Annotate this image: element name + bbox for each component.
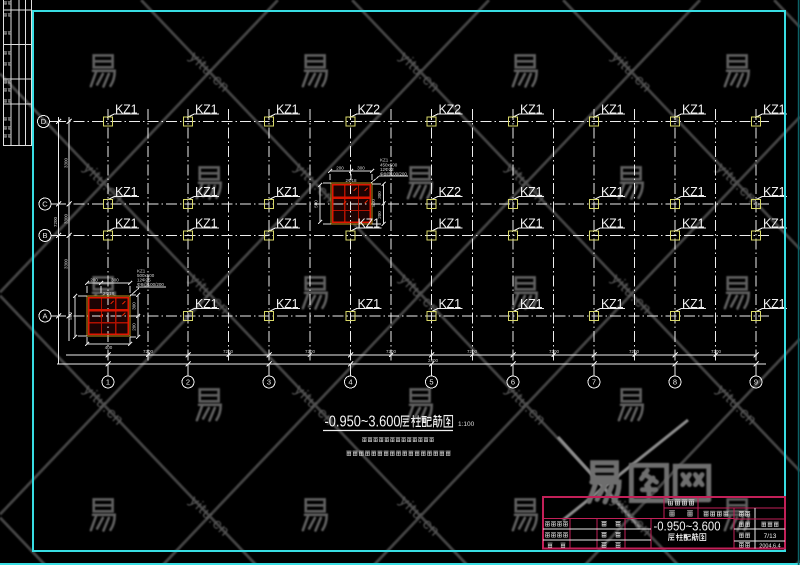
svg-text:300: 300: [132, 302, 137, 310]
svg-text:200: 200: [336, 166, 344, 171]
svg-text:KZ1: KZ1: [763, 297, 786, 311]
svg-text:D: D: [41, 117, 47, 126]
svg-text:3300: 3300: [64, 258, 69, 269]
svg-text:KZ1: KZ1: [601, 297, 624, 311]
svg-text:KZ1: KZ1: [520, 103, 543, 117]
svg-text:C: C: [42, 200, 48, 209]
svg-text:8: 8: [673, 378, 677, 387]
svg-text:3300: 3300: [64, 157, 69, 168]
svg-text:KZ1: KZ1: [195, 185, 218, 199]
svg-text:KZ1: KZ1: [276, 297, 299, 311]
svg-text:2400: 2400: [428, 358, 439, 363]
svg-text:3300: 3300: [64, 213, 69, 224]
svg-text:7/13: 7/13: [764, 533, 777, 540]
svg-text:2Φ18: 2Φ18: [345, 178, 357, 183]
svg-text:7200: 7200: [386, 349, 397, 354]
svg-text:KZ1: KZ1: [682, 185, 705, 199]
svg-text:300: 300: [111, 278, 119, 283]
svg-text:KZ1: KZ1: [682, 217, 705, 231]
svg-text:KZ1: KZ1: [358, 217, 381, 231]
svg-text:300: 300: [357, 166, 365, 171]
svg-text:7200: 7200: [629, 349, 640, 354]
svg-text:3: 3: [267, 378, 271, 387]
svg-text:KZ1: KZ1: [601, 217, 624, 231]
svg-text:500: 500: [68, 312, 73, 320]
svg-text:KZ1: KZ1: [763, 185, 786, 199]
svg-text:200: 200: [132, 323, 137, 331]
svg-text:300: 300: [377, 191, 382, 199]
svg-text:KZ1: KZ1: [520, 185, 543, 199]
svg-text:2: 2: [186, 378, 190, 387]
svg-text:Φ8@100/200: Φ8@100/200: [137, 282, 164, 287]
svg-text:KZ1: KZ1: [276, 185, 299, 199]
svg-text:9: 9: [754, 378, 758, 387]
svg-text:KZ1: KZ1: [276, 103, 299, 117]
svg-text:7200: 7200: [711, 349, 722, 354]
svg-text:KZ1: KZ1: [195, 217, 218, 231]
svg-text:KZ1: KZ1: [115, 185, 138, 199]
svg-text:KZ1: KZ1: [276, 217, 299, 231]
svg-text:KZ1: KZ1: [682, 297, 705, 311]
svg-text:KZ1: KZ1: [520, 297, 543, 311]
svg-text:2Φ18: 2Φ18: [103, 291, 115, 296]
svg-text:KZ1: KZ1: [763, 217, 786, 231]
svg-text:KZ1: KZ1: [763, 103, 786, 117]
svg-text:B: B: [42, 231, 47, 240]
svg-text:7200: 7200: [305, 349, 316, 354]
svg-text:7200: 7200: [223, 349, 234, 354]
svg-text:KZ2: KZ2: [439, 185, 462, 199]
svg-text:7: 7: [592, 378, 596, 387]
svg-text:KZ1: KZ1: [195, 103, 218, 117]
svg-text:1: 1: [106, 378, 110, 387]
svg-text:200: 200: [90, 278, 98, 283]
svg-text:4: 4: [348, 378, 352, 387]
svg-text:500: 500: [371, 199, 376, 207]
svg-text:KZ1: KZ1: [439, 297, 462, 311]
svg-text:KZ1: KZ1: [358, 297, 381, 311]
svg-text:7200: 7200: [53, 216, 58, 227]
svg-text:-0.950~3.600: -0.950~3.600: [654, 520, 721, 534]
svg-text:500: 500: [314, 200, 319, 208]
svg-text:5: 5: [429, 378, 433, 387]
svg-text:KZ1: KZ1: [195, 297, 218, 311]
svg-text:7200: 7200: [143, 349, 154, 354]
svg-text:7200: 7200: [549, 349, 560, 354]
svg-text:KZ1: KZ1: [682, 103, 705, 117]
svg-text:KZ1: KZ1: [601, 103, 624, 117]
svg-text:KZ1: KZ1: [439, 217, 462, 231]
svg-text:1:100: 1:100: [458, 421, 475, 428]
svg-text:KZ2: KZ2: [358, 103, 381, 117]
svg-text:7200: 7200: [467, 349, 478, 354]
svg-text:KZ1: KZ1: [115, 217, 138, 231]
svg-text:Φ8@100/200: Φ8@100/200: [380, 172, 407, 177]
svg-text:6: 6: [511, 378, 515, 387]
svg-text:-0.950~3.600: -0.950~3.600: [325, 414, 401, 431]
svg-text:KZ2: KZ2: [439, 103, 462, 117]
svg-text:A: A: [42, 312, 47, 321]
svg-text:400: 400: [105, 345, 113, 350]
svg-text:2004.6.4: 2004.6.4: [759, 544, 780, 550]
svg-text:KZ1: KZ1: [115, 103, 138, 117]
svg-text:KZ1: KZ1: [520, 217, 543, 231]
svg-text:KZ1: KZ1: [601, 185, 624, 199]
